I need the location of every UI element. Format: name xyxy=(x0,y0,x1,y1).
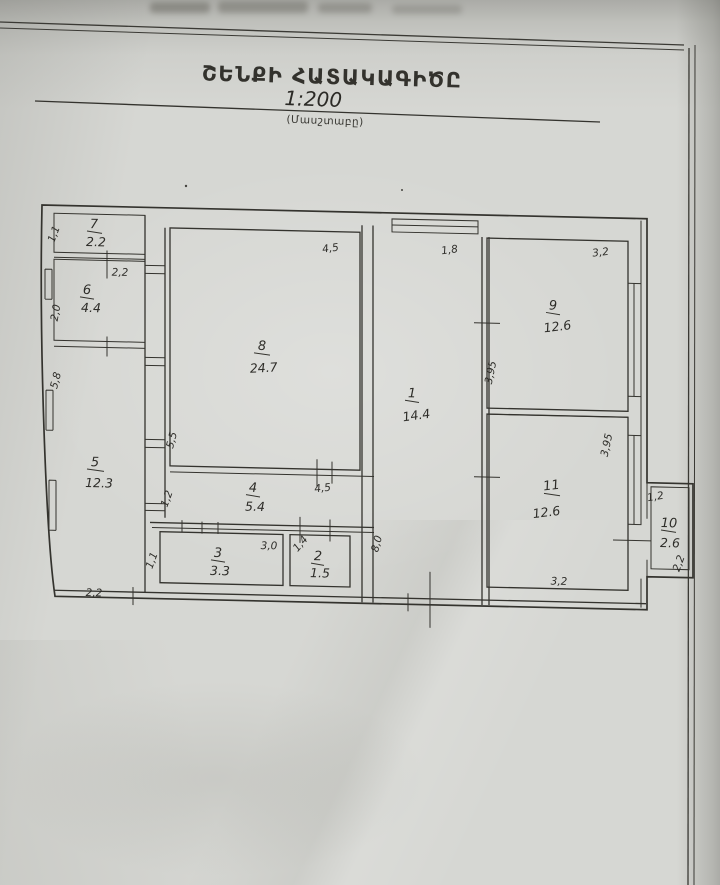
room4-number: 4 xyxy=(249,481,257,496)
dim-room2-top: 1,4 xyxy=(291,534,311,554)
dimension-labels: 1,1 2,2 2,0 5,8 2,2 4,5 5,5 1,2 4,5 3,0 … xyxy=(46,224,688,612)
page-frame-border xyxy=(0,22,695,885)
dim-room7-left: 1,1 xyxy=(46,224,63,244)
room8-area: 24.7 xyxy=(249,359,278,375)
room6-area: 4.4 xyxy=(81,300,101,315)
room7-area: 2.2 xyxy=(86,234,106,249)
room1-number: 1 xyxy=(408,386,416,401)
room10-area: 2.6 xyxy=(660,535,680,550)
scale-value: 1:200 xyxy=(284,86,342,112)
dim-room4-right: 4,5 xyxy=(314,482,332,496)
dim-room8-top: 4,5 xyxy=(321,241,340,255)
dimension-ticks xyxy=(107,250,651,632)
room5-number: 5 xyxy=(91,455,99,470)
room4-area: 5.4 xyxy=(245,499,265,514)
dim-room3-top: 3,0 xyxy=(261,540,278,552)
room1-area: 14.4 xyxy=(401,406,431,425)
dim-room5-bottom: 2,2 xyxy=(86,587,103,599)
room3-number: 3 xyxy=(214,546,222,561)
room10-number: 10 xyxy=(661,516,678,531)
dim-room8-left-lower: 5,5 xyxy=(164,430,180,450)
dim-room9-top: 3,2 xyxy=(591,246,610,260)
floor-plan-drawing: ՇԵՆՔԻ ՀԱՏԱԿԱԳԻԾԸ 1:200 (Մասշտաբը) xyxy=(0,0,720,885)
dim-corridor-left: 1,2 xyxy=(159,489,176,509)
room11-number: 11 xyxy=(542,478,560,495)
dim-room3-left: 1,1 xyxy=(144,551,161,571)
pen-speck xyxy=(185,185,187,187)
scanned-floor-plan-page: ՇԵՆՔԻ ՀԱՏԱԿԱԳԻԾԸ 1:200 (Մասշտաբը) xyxy=(0,0,720,885)
dim-room1-top: 1,8 xyxy=(440,243,459,257)
room5-area: 12.3 xyxy=(85,475,113,491)
room9-area: 12.6 xyxy=(543,317,573,335)
room2-number: 2 xyxy=(314,549,322,564)
dim-room11-right: 3,95 xyxy=(599,432,616,458)
dim-room6-width: 2,2 xyxy=(112,267,129,279)
dim-left-wall: 5,8 xyxy=(48,371,64,391)
dim-room6-left: 2,0 xyxy=(49,303,64,322)
dim-room10-right: 2,2 xyxy=(671,553,688,573)
floor-plan: 7 2.2 6 4.4 5 12.3 8 24.7 4 5.4 xyxy=(41,205,693,634)
room8-number: 8 xyxy=(258,339,266,354)
room7-number: 7 xyxy=(90,217,99,232)
room3-area: 3.3 xyxy=(210,563,230,578)
outer-walls xyxy=(41,205,693,611)
pen-speck xyxy=(401,189,403,191)
dim-room9-left: 3,95 xyxy=(483,360,500,386)
dim-room11-bottom: 3,2 xyxy=(551,576,568,588)
room2-area: 1.5 xyxy=(310,565,330,580)
title-block: ՇԵՆՔԻ ՀԱՏԱԿԱԳԻԾԸ 1:200 (Մասշտաբը) xyxy=(35,61,600,191)
room9-number: 9 xyxy=(549,299,557,314)
room6-number: 6 xyxy=(83,283,91,298)
dim-room10-top: 1,2 xyxy=(646,490,665,504)
dim-room1-left: 8,0 xyxy=(369,534,385,554)
room11-area: 12.6 xyxy=(532,503,562,521)
scale-caption: (Մասշտաբը) xyxy=(286,114,364,129)
